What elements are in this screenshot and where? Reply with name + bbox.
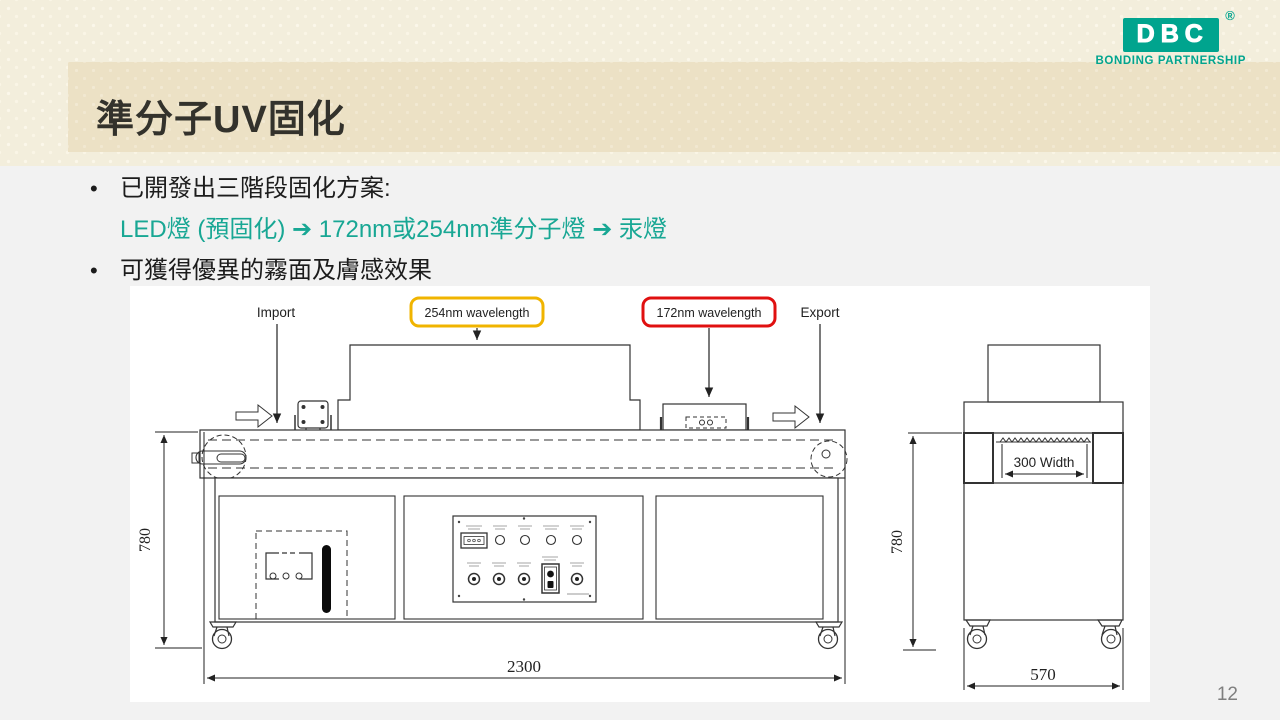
bullet-text-1: 已開發出三階段固化方案: [120, 175, 391, 202]
dim-height-side: 780 [889, 530, 906, 554]
wavelength-172-label: 172nm wavelength [657, 306, 762, 320]
machine-diagram-panel: Import 254nm wavelength 172nm wavelength… [130, 286, 1150, 702]
logo-mark: DBC [1123, 18, 1219, 52]
bullet-item-1: •已開發出三階段固化方案: [90, 168, 1140, 209]
control-panel [453, 516, 596, 602]
conveyor [192, 430, 847, 479]
callout-export: Export [800, 305, 839, 423]
bullet-text-2: LED燈 (預固化) ➔ 172nm或254nm準分子燈 ➔ 汞燈 [120, 216, 667, 243]
machine-drawing: Import 254nm wavelength 172nm wavelength… [130, 286, 1150, 702]
cabinet [210, 478, 842, 649]
logo-tagline: BONDING PARTNERSHIP [1096, 55, 1246, 67]
vent-slot [322, 545, 331, 613]
front-casters [210, 622, 842, 649]
dim-belt-width: 300 Width [1014, 455, 1075, 470]
led-lamp-unit [295, 401, 331, 432]
flow-arrow-out-icon [773, 406, 809, 428]
dim-total-width: 2300 [507, 657, 541, 676]
callout-172nm: 172nm wavelength [643, 298, 775, 397]
uv-chamber-254 [338, 345, 640, 430]
slide: 準分子UV固化 DBC ® BONDING PARTNERSHIP •已開發出三… [0, 0, 1280, 720]
bullet-item-2: LED燈 (預固化) ➔ 172nm或254nm準分子燈 ➔ 汞燈 [90, 209, 1140, 250]
side-body [964, 402, 1123, 620]
dim-side-width: 570 [1030, 665, 1056, 684]
bullet-item-3: •可獲得優異的霧面及膚感效果 [90, 250, 1140, 291]
wavelength-254-label: 254nm wavelength [425, 306, 530, 320]
registered-trademark-icon: ® [1225, 8, 1235, 23]
import-label: Import [257, 305, 296, 320]
bullet-text-3: 可獲得優異的霧面及膚感效果 [120, 257, 432, 284]
callout-254nm: 254nm wavelength [411, 298, 543, 340]
page-title: 準分子UV固化 [96, 88, 346, 143]
side-casters [966, 620, 1122, 649]
bullet-icon: • [90, 168, 120, 209]
bullet-list: •已開發出三階段固化方案: LED燈 (預固化) ➔ 172nm或254nm準分… [90, 168, 1140, 291]
page-number: 12 [1217, 684, 1238, 706]
bullet-icon: • [90, 250, 120, 291]
machine-side-view [964, 345, 1123, 649]
machine-front-view [192, 345, 847, 649]
export-label: Export [800, 305, 839, 320]
side-top-box [988, 345, 1100, 402]
flow-arrow-in-icon [236, 405, 272, 427]
callout-import: Import [257, 305, 296, 423]
dim-height-front: 780 [137, 528, 154, 552]
company-logo: DBC ® BONDING PARTNERSHIP [1096, 18, 1246, 67]
belt-cross-section [1000, 438, 1090, 442]
